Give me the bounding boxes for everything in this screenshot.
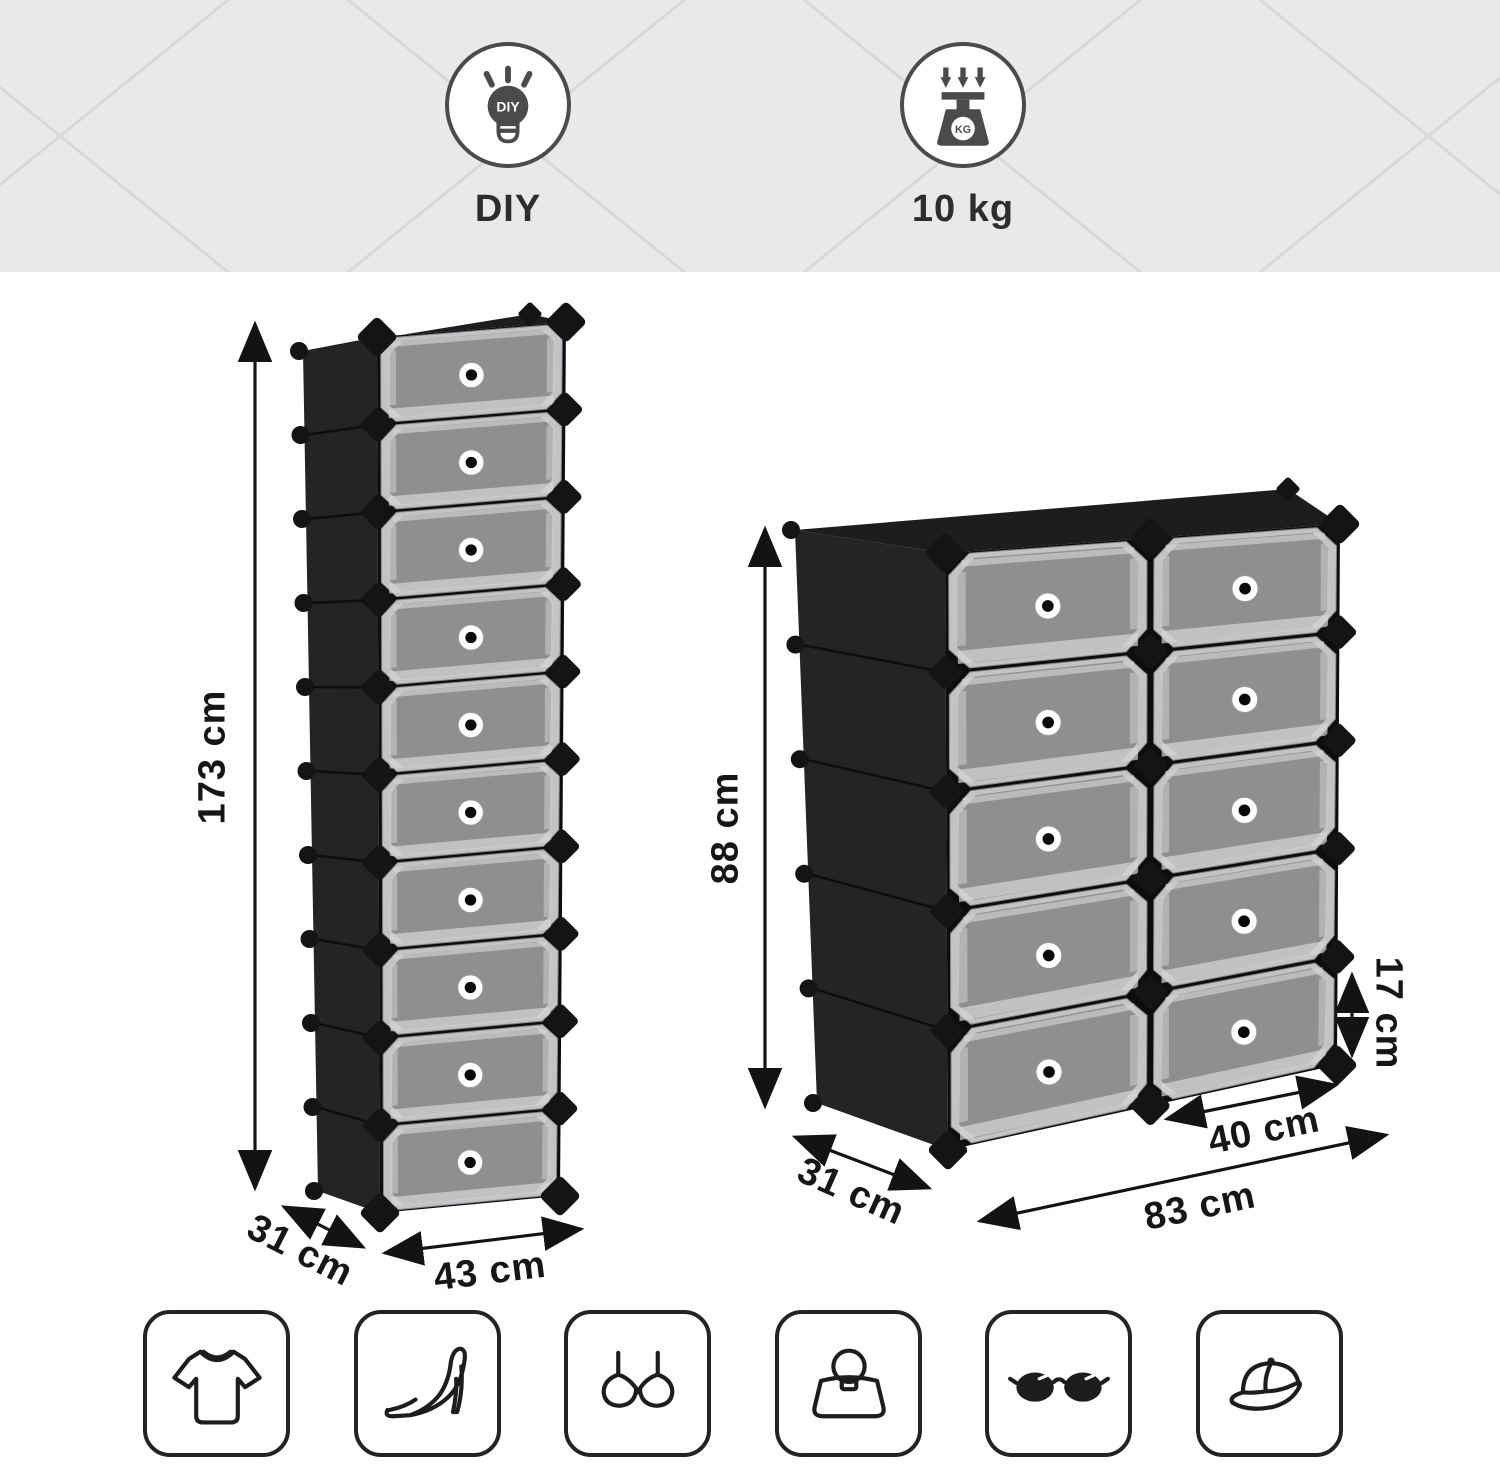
category-icon-tshirt xyxy=(143,1310,290,1457)
category-icon-bra xyxy=(564,1310,711,1457)
tall-unit xyxy=(290,301,587,1234)
category-icon-baseball-cap xyxy=(1196,1310,1343,1457)
baseball-cap-icon xyxy=(1218,1332,1322,1436)
wide-unit xyxy=(782,476,1361,1171)
handbag-icon xyxy=(797,1332,901,1436)
sunglasses-icon xyxy=(1007,1332,1111,1436)
category-icon-high-heel xyxy=(354,1310,501,1457)
dim-label-tall-unit-height: 173 cm xyxy=(192,690,235,825)
dim-label-compartment-height: 17 cm xyxy=(1367,957,1410,1070)
category-icon-sunglasses xyxy=(985,1310,1132,1457)
category-icon-handbag xyxy=(775,1310,922,1457)
high-heel-icon xyxy=(376,1332,480,1436)
t-shirt-icon xyxy=(165,1332,269,1436)
product-infographic: DIY DIY xyxy=(0,0,1500,1464)
dim-label-wide-unit-height: 88 cm xyxy=(705,772,748,885)
bra-icon xyxy=(586,1332,690,1436)
